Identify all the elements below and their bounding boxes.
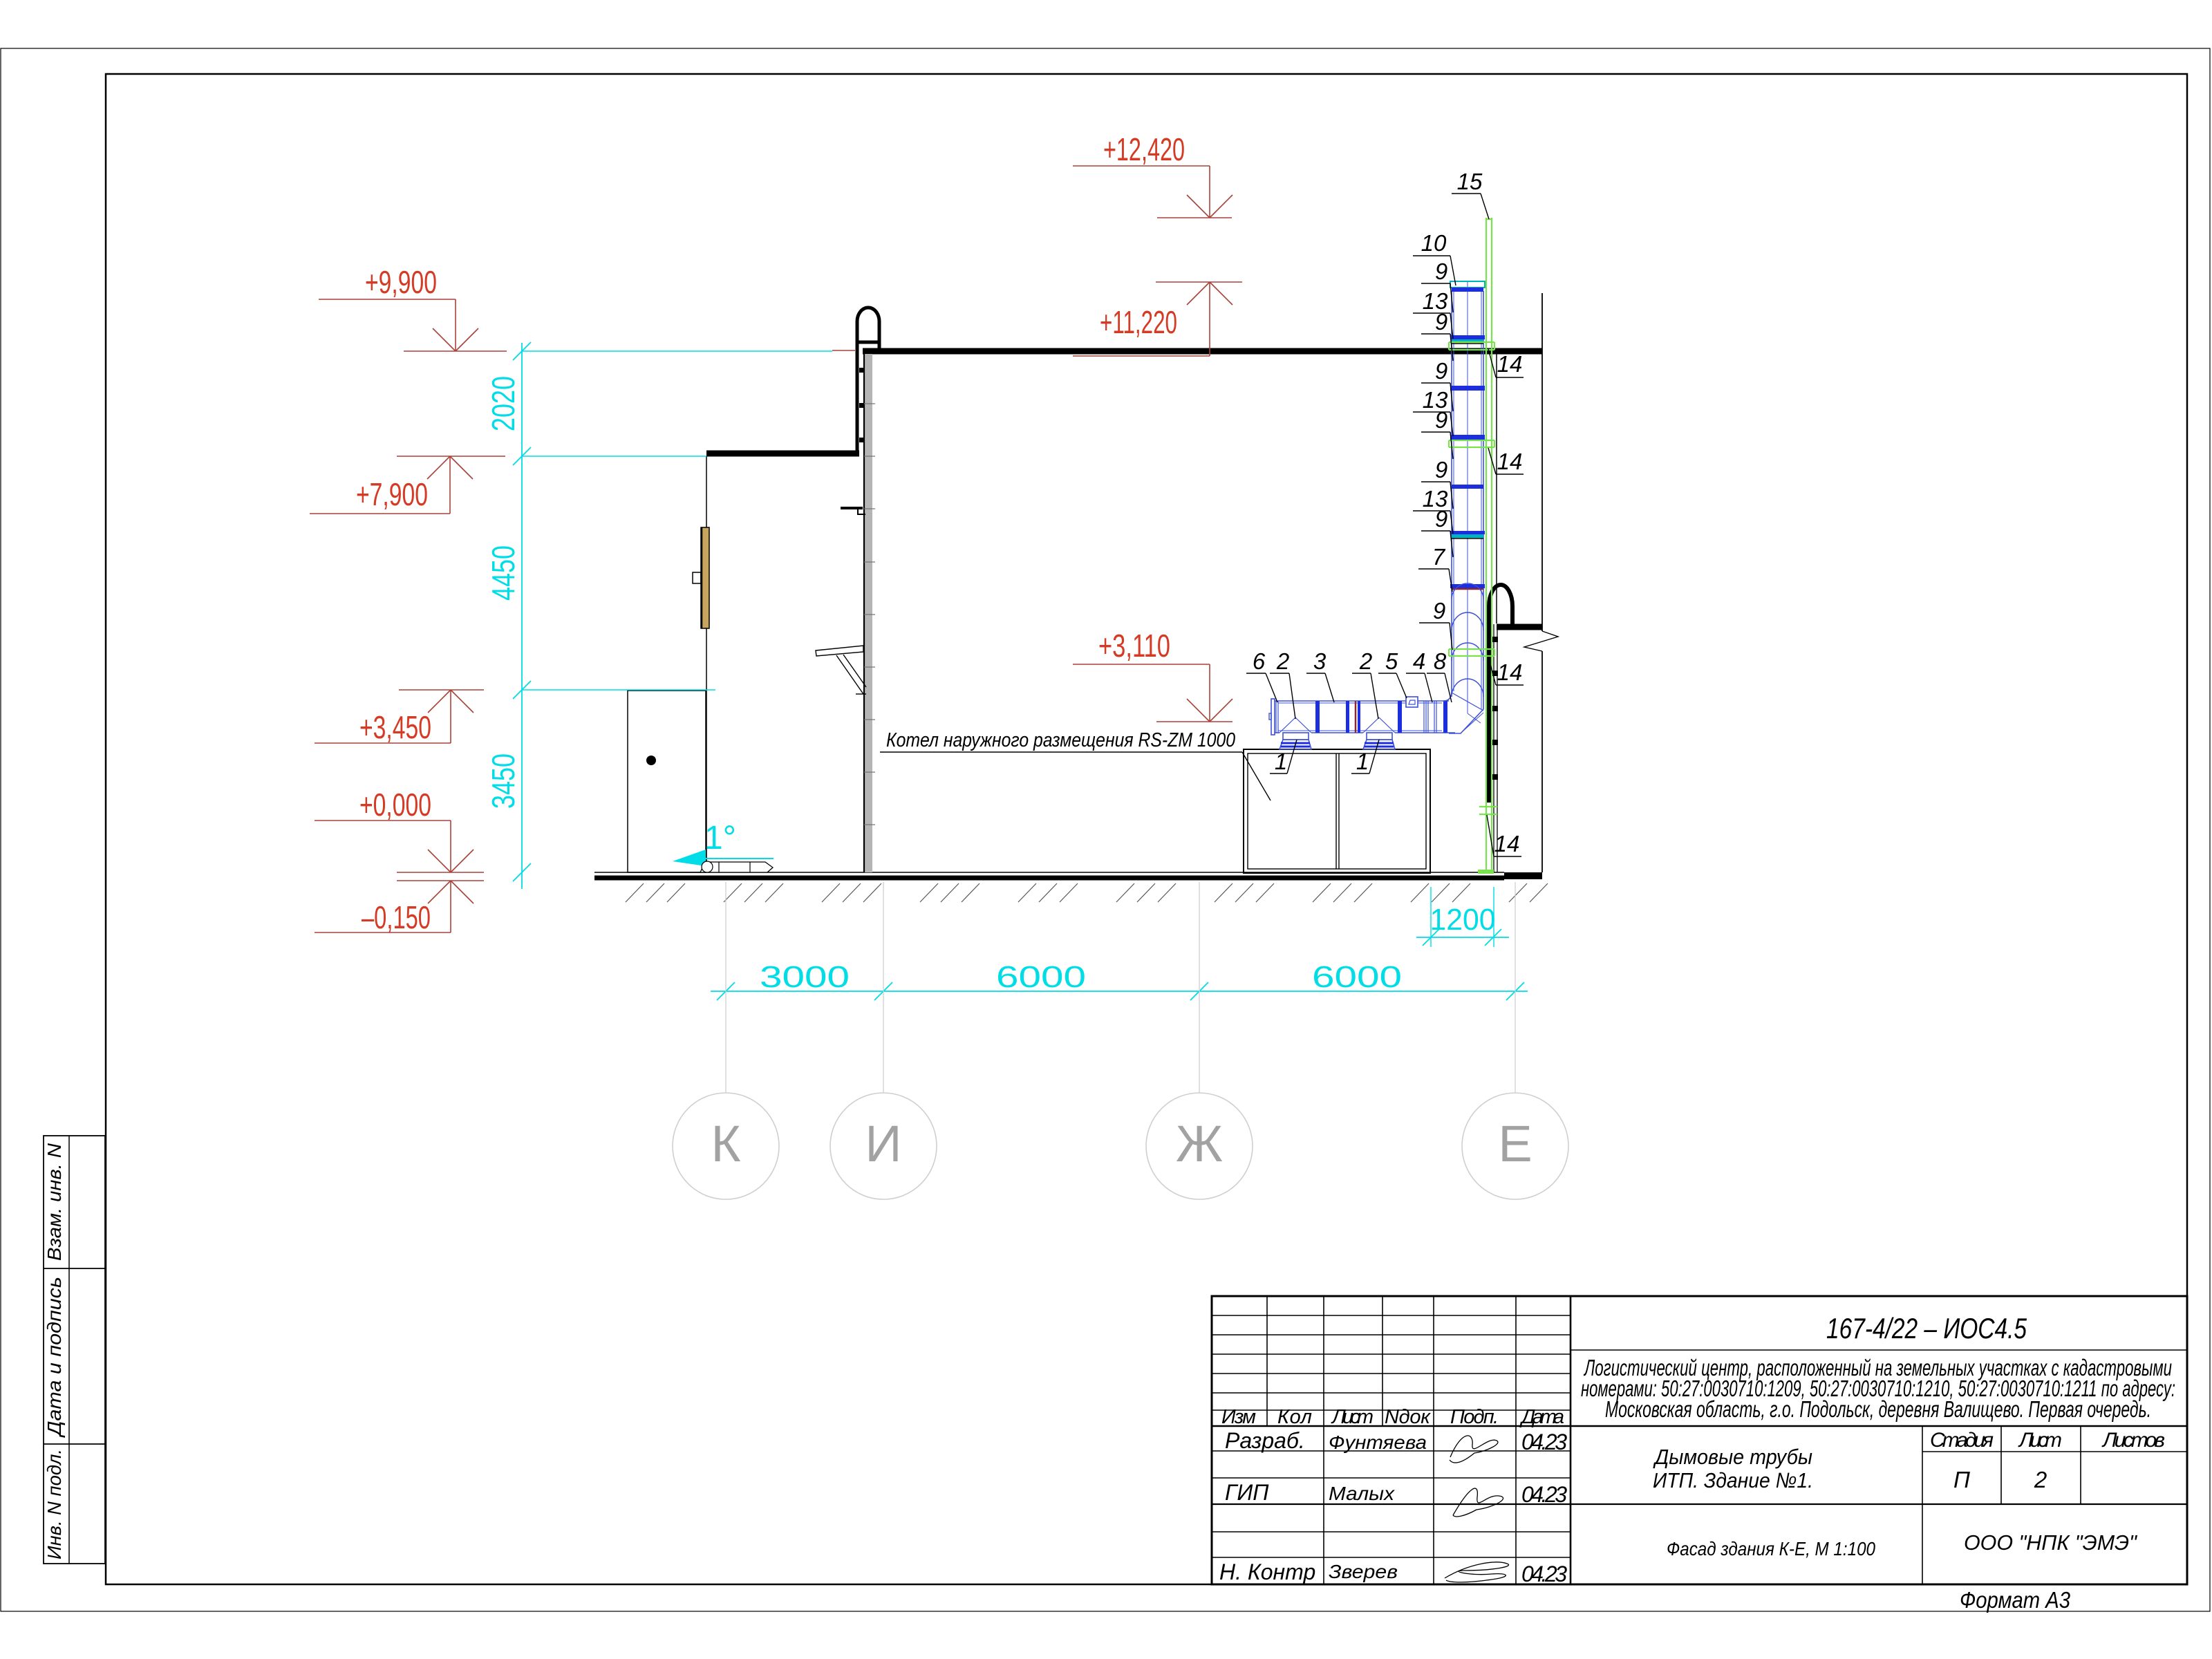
svg-text:04.23: 04.23 — [1521, 1482, 1567, 1507]
svg-text:3: 3 — [1313, 648, 1327, 674]
svg-text:+7,900: +7,900 — [356, 476, 428, 512]
svg-text:Инв. N подл.: Инв. N подл. — [44, 1449, 65, 1559]
svg-text:9: 9 — [1435, 309, 1447, 335]
svg-text:9: 9 — [1435, 407, 1447, 433]
svg-text:+9,900: +9,900 — [365, 264, 437, 300]
svg-text:Лист: Лист — [1331, 1406, 1374, 1428]
svg-text:Н. Контр: Н. Контр — [1219, 1559, 1315, 1584]
svg-text:ООО "НПК "ЭМЭ": ООО "НПК "ЭМЭ" — [1964, 1530, 2138, 1555]
svg-text:167-4/22 – ИОС4.5: 167-4/22 – ИОС4.5 — [1826, 1312, 2027, 1344]
svg-text:2: 2 — [1276, 648, 1289, 674]
svg-text:3450: 3450 — [485, 753, 521, 809]
svg-text:6: 6 — [1253, 648, 1266, 674]
svg-text:9: 9 — [1435, 358, 1447, 384]
svg-text:+3,450: +3,450 — [359, 709, 431, 745]
svg-text:Котел наружного размещения RS-: Котел наружного размещения RS-ZM 1000 — [886, 729, 1235, 751]
svg-text:+0,000: +0,000 — [359, 787, 431, 823]
svg-text:14: 14 — [1494, 831, 1520, 856]
svg-text:Кол: Кол — [1277, 1406, 1312, 1428]
svg-text:04.23: 04.23 — [1521, 1430, 1567, 1454]
svg-text:ГИП: ГИП — [1225, 1480, 1269, 1505]
svg-text:Дата и подпись: Дата и подпись — [44, 1277, 65, 1438]
svg-text:1: 1 — [1275, 749, 1287, 774]
svg-text:5: 5 — [1385, 648, 1398, 674]
svg-text:3000: 3000 — [760, 960, 850, 994]
svg-text:Дата: Дата — [1519, 1406, 1564, 1428]
svg-text:9: 9 — [1433, 598, 1445, 624]
svg-text:Изм: Изм — [1221, 1406, 1256, 1428]
svg-text:+11,220: +11,220 — [1100, 304, 1177, 340]
svg-text:Фунтяева: Фунтяева — [1329, 1432, 1427, 1453]
svg-text:Зверев: Зверев — [1329, 1561, 1398, 1582]
svg-text:4450: 4450 — [485, 545, 521, 601]
svg-text:15: 15 — [1457, 169, 1483, 194]
svg-text:П: П — [1953, 1467, 1970, 1492]
svg-text:Формат А3: Формат А3 — [1960, 1587, 2071, 1613]
svg-text:Е: Е — [1498, 1115, 1532, 1172]
svg-text:9: 9 — [1435, 457, 1447, 482]
svg-text:Дымовые трубы: Дымовые трубы — [1653, 1445, 1812, 1469]
svg-text:ИТП. Здание №1.: ИТП. Здание №1. — [1653, 1468, 1813, 1492]
svg-text:14: 14 — [1497, 449, 1523, 474]
svg-text:4: 4 — [1413, 648, 1425, 674]
svg-text:Взам. инв. N: Взам. инв. N — [44, 1143, 65, 1261]
svg-text:14: 14 — [1497, 659, 1523, 685]
svg-text:6000: 6000 — [1312, 960, 1402, 994]
svg-text:1200: 1200 — [1430, 903, 1496, 937]
svg-text:Подп.: Подп. — [1450, 1406, 1499, 1428]
svg-text:2: 2 — [2034, 1467, 2047, 1492]
svg-text:1: 1 — [1356, 749, 1369, 774]
svg-text:К: К — [711, 1115, 740, 1172]
svg-text:7: 7 — [1432, 544, 1446, 570]
svg-text:И: И — [865, 1115, 901, 1172]
svg-text:1°: 1° — [704, 820, 736, 856]
svg-text:Московская область, г.о. Подол: Московская область, г.о. Подольск, дерев… — [1605, 1396, 2151, 1422]
svg-text:8: 8 — [1434, 648, 1447, 674]
svg-text:Разраб.: Разраб. — [1225, 1428, 1305, 1453]
svg-text:–0,150: –0,150 — [362, 899, 431, 935]
svg-text:Малых: Малых — [1329, 1483, 1395, 1504]
svg-text:10: 10 — [1421, 230, 1447, 256]
svg-text:04.23: 04.23 — [1521, 1562, 1567, 1586]
svg-text:2: 2 — [1359, 648, 1372, 674]
svg-text:Фасад здания К-Е, М 1:100: Фасад здания К-Е, М 1:100 — [1667, 1538, 1875, 1559]
svg-text:+3,110: +3,110 — [1098, 628, 1170, 664]
svg-text:Лист: Лист — [2018, 1429, 2062, 1452]
svg-text:9: 9 — [1435, 506, 1447, 532]
svg-text:2020: 2020 — [485, 376, 521, 431]
svg-text:14: 14 — [1497, 351, 1523, 377]
svg-text:Стадия: Стадия — [1930, 1429, 1994, 1452]
svg-text:Ж: Ж — [1176, 1115, 1223, 1172]
svg-text:Nдок: Nдок — [1385, 1406, 1431, 1428]
svg-text:9: 9 — [1435, 259, 1447, 284]
svg-text:+12,420: +12,420 — [1103, 131, 1185, 167]
svg-text:6000: 6000 — [996, 960, 1086, 994]
svg-text:Листов: Листов — [2101, 1429, 2165, 1452]
